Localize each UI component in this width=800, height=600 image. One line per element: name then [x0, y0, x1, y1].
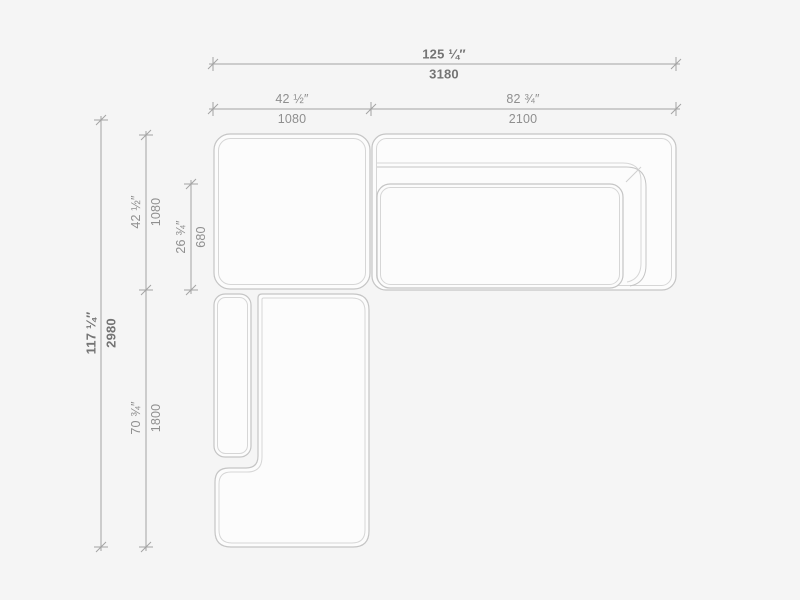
drawing-canvas: 125 ¼″ 3180 42 ½″ 1080 82 ¾″ 2100 117 ¼″… — [0, 0, 800, 600]
ottoman-outline — [214, 134, 370, 289]
sofa-pieces — [214, 134, 676, 547]
tick-marks-horizontal — [208, 57, 681, 116]
sectional-sofa-diagram — [0, 0, 800, 600]
chaise-armrest-outline — [214, 294, 251, 457]
dimension-lines — [94, 57, 681, 552]
seat-cushion-outline — [377, 184, 623, 288]
